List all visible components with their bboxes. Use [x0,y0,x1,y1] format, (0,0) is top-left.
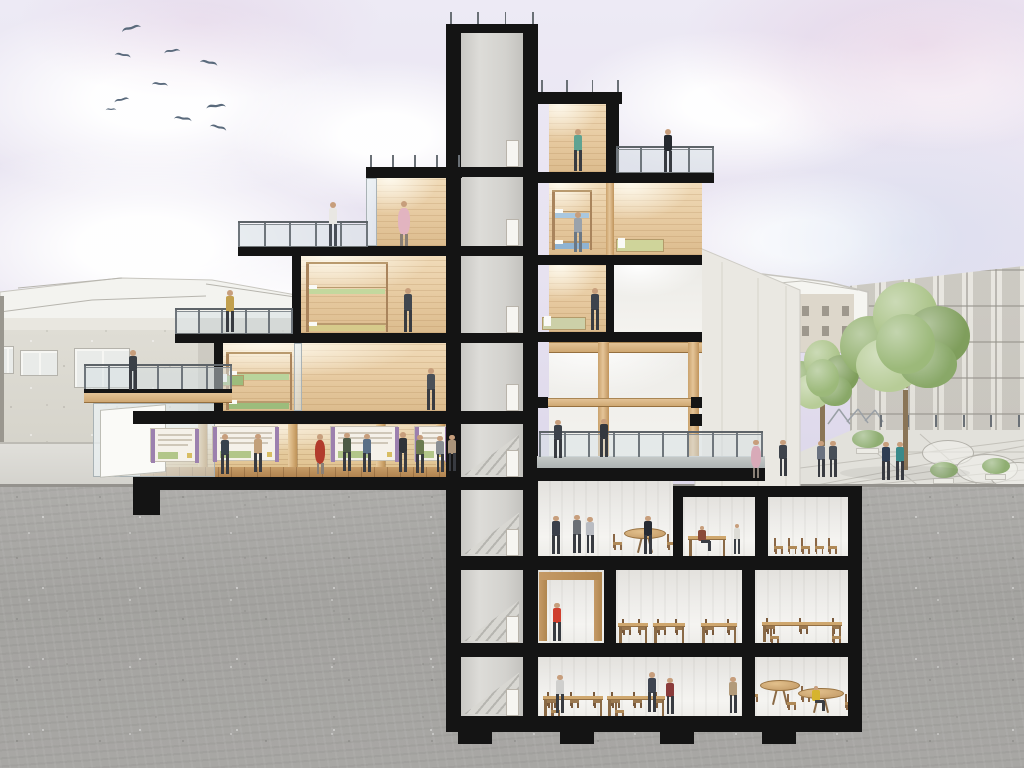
person [697,526,707,552]
person [554,675,567,713]
person [396,432,410,472]
person [571,212,585,252]
person [424,368,438,410]
person [551,603,564,641]
person [571,129,585,171]
person [550,516,563,554]
person [313,434,327,474]
person [223,290,237,332]
person [750,440,763,478]
person [552,420,565,458]
person [401,288,416,332]
person [326,202,341,246]
person [584,517,596,553]
person [664,678,676,714]
person [777,440,789,476]
person [732,524,742,554]
person [571,515,584,553]
person [727,677,739,713]
layer-people [0,0,1024,768]
person [434,436,446,472]
person [414,435,427,473]
person [598,419,611,457]
person [252,434,265,472]
person [396,201,411,246]
person [341,433,354,471]
person [126,350,140,390]
architectural-section-rendering [0,0,1024,768]
person [446,435,458,471]
person [361,434,374,472]
person [218,434,232,474]
person [645,672,659,712]
person [661,129,676,172]
person [588,288,602,330]
person [642,516,655,554]
person [811,686,821,712]
